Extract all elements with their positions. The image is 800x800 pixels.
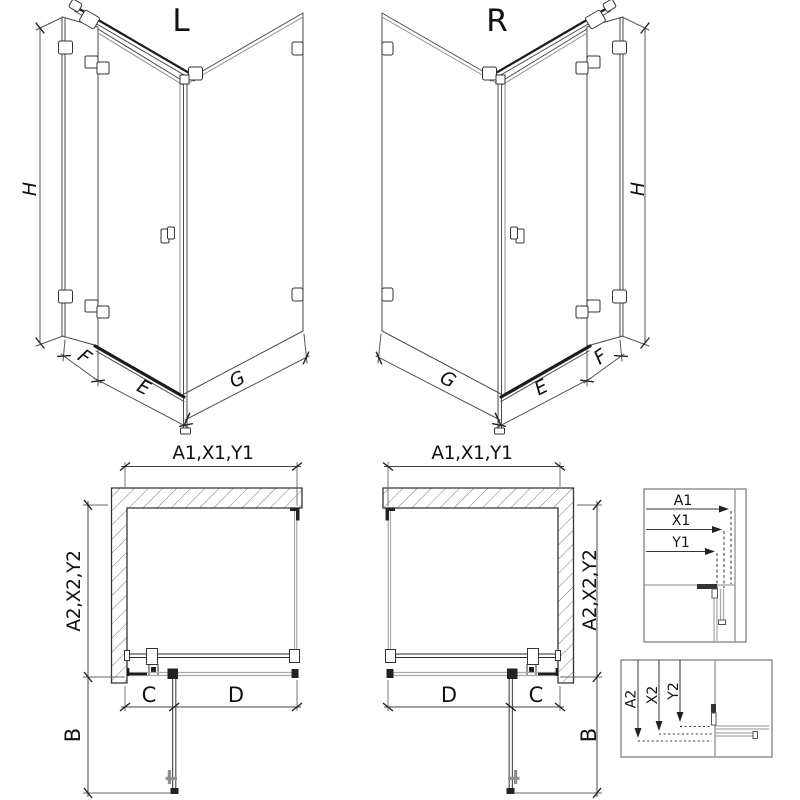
detail-dim-label-x1: X1 bbox=[672, 513, 691, 529]
r-plan-dim-label-b: B bbox=[577, 728, 601, 742]
l-plan-dim-label-top: A1,X1,Y1 bbox=[172, 443, 253, 464]
r-plan-dim-label-top: A1,X1,Y1 bbox=[431, 443, 512, 464]
r3d-geometry bbox=[373, 0, 649, 434]
l3d-view-label: L bbox=[172, 3, 190, 39]
l-plan-dim-label-side: A2,X2,Y2 bbox=[64, 550, 85, 631]
detail-dim-label-x2: X2 bbox=[645, 686, 661, 705]
l3d-dim-label-h: H bbox=[19, 182, 41, 196]
detail-dim-label-a1: A1 bbox=[674, 493, 692, 509]
detail-dim-label-a2: A2 bbox=[624, 690, 640, 708]
detail-dim-label-y1: Y1 bbox=[671, 535, 689, 551]
l-plan-dim-label-d: D bbox=[228, 683, 244, 707]
l3d-geometry bbox=[36, 0, 312, 434]
detail-box-width-measurement: A1 X1 Y1 bbox=[644, 489, 746, 642]
r-plan-dim-label-d: D bbox=[441, 683, 457, 707]
shower-enclosure-technical-drawing: L R H F E G H F E G A1,X1,Y1 A2,X2,Y2 C … bbox=[0, 0, 800, 800]
profile-bracket bbox=[697, 584, 717, 589]
detail-dim-label-y2: Y2 bbox=[666, 682, 682, 700]
r-plan-dim-label-side: A2,X2,Y2 bbox=[580, 549, 601, 630]
l-plan-dim-label-b: B bbox=[61, 728, 85, 742]
drawing-canvas: L R H F E G H F E G A1,X1,Y1 A2,X2,Y2 C … bbox=[0, 0, 800, 800]
detail-box-depth-measurement: A2 X2 Y2 bbox=[621, 660, 772, 757]
r3d-dim-label-h: H bbox=[627, 182, 649, 196]
l3d-dim-label-e: E bbox=[133, 375, 154, 400]
r3d-dim-label-e: E bbox=[531, 375, 552, 400]
l-plan-dim-label-c: C bbox=[142, 683, 157, 707]
r3d-view-label: R bbox=[486, 3, 508, 39]
r-plan-dim-label-c: C bbox=[529, 683, 544, 707]
